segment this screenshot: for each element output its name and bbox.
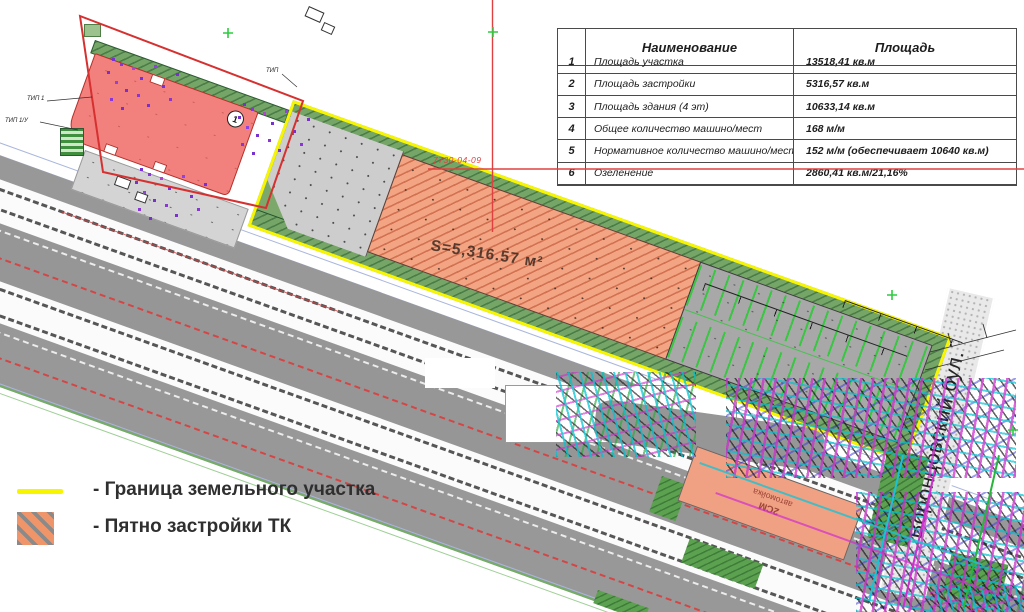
utility-annotation-cluster: [556, 372, 696, 457]
building-notch: [152, 161, 167, 174]
table-row-area: 2860,41 кв.м/21,16%: [794, 163, 1016, 185]
table-row-area: 13518,41 кв.м: [794, 51, 1016, 73]
table-row-name: Озеленение: [586, 163, 794, 185]
table-row-num: 5: [558, 140, 586, 162]
legend-hatch-swatch: [17, 512, 54, 545]
table-row-num: 1: [558, 51, 586, 73]
tree-annotation-specks: [140, 168, 143, 171]
tiny-callout-box: [321, 22, 336, 35]
equipment-box: [134, 191, 148, 204]
table-row-name: Общее количество машино/мест: [586, 118, 794, 140]
tip-callout-3: ТИП: [266, 68, 278, 74]
table-row-area: 10633,14 кв.м: [794, 96, 1016, 118]
table-row-num: 6: [558, 163, 586, 185]
table-row-area: 168 м/м: [794, 118, 1016, 140]
tree-annotation-specks: [112, 58, 115, 61]
building-notch: [103, 143, 118, 156]
building-number-marker: 1: [225, 108, 247, 130]
tip-callout-2: ТИП 1/У: [5, 118, 28, 124]
legend-yellow-line-swatch: [17, 489, 63, 494]
green-checker-patch: [60, 128, 84, 156]
areas-table: Наименование Площадь 1 Площадь участка 1…: [557, 28, 1017, 186]
table-row-name: Площадь застройки: [586, 74, 794, 96]
tree-annotation-specks: [243, 103, 246, 106]
green-patch: [84, 24, 101, 37]
site-plan-drawing: Воронцовский бул. S=5,316.57 м² 1: [0, 0, 1024, 612]
table-row-num: 2: [558, 74, 586, 96]
tip-callout-1: ТИП 1: [27, 96, 44, 102]
carwash-label: 2СМ автомойка: [748, 487, 794, 519]
utility-annotation-cluster: [930, 585, 1024, 612]
cadastral-red-line-ref: 7730-04-09: [433, 155, 481, 165]
traffic-island-small: [425, 358, 495, 388]
footprint-area-label: S=5,316.57 м²: [429, 237, 544, 272]
utility-annotation-cluster: [726, 378, 1016, 478]
tiny-callout-box: [304, 6, 324, 23]
table-row-name: Нормативное количество машино/мест: [586, 140, 794, 162]
table-row-name: Площадь здания (4 эт): [586, 96, 794, 118]
table-row-area: 5316,57 кв.м: [794, 74, 1016, 96]
legend: - Граница земельного участка - Пятно зас…: [0, 470, 460, 570]
legend-footprint-label: - Пятно застройки ТК: [93, 516, 291, 538]
equipment-box: [114, 175, 132, 189]
table-row-num: 3: [558, 96, 586, 118]
table-row-num: 4: [558, 118, 586, 140]
table-row-area: 152 м/м (обеспечивает 10640 кв.м): [794, 140, 1016, 162]
table-row-name: Площадь участка: [586, 51, 794, 73]
legend-boundary-label: - Граница земельного участка: [93, 479, 375, 501]
